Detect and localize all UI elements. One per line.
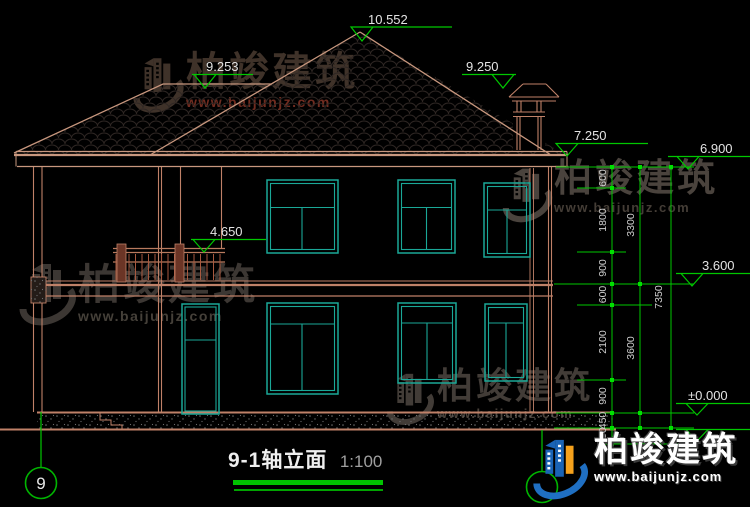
roof-tile-hatch	[14, 32, 564, 154]
window-1f-left	[267, 303, 338, 394]
window-2f-mid	[398, 180, 455, 253]
window-2f-right	[484, 183, 530, 257]
dim-900a: 900	[597, 259, 609, 277]
elevation-ground-floor: ±0.000	[688, 388, 728, 403]
drawing-scale: 1:100	[340, 452, 383, 472]
dim-3600: 3600	[625, 336, 637, 360]
dimension-labels: 600 1800 900 600 2100 900 450 450 3300 3…	[597, 169, 665, 445]
brand-site: www.baijunjz.com	[594, 469, 738, 484]
title-underline-thin	[234, 489, 383, 491]
elevation-eave-fascia: 7.250	[574, 128, 607, 143]
windows	[182, 180, 530, 414]
title-underline	[233, 480, 383, 485]
dim-1800: 1800	[597, 208, 609, 232]
column-base-hatch	[31, 277, 46, 303]
balcony-railing	[113, 244, 225, 282]
elevation-eave: 6.900	[700, 141, 733, 156]
walls	[33, 167, 553, 412]
dim-2100: 2100	[597, 330, 609, 354]
dimension-lines	[554, 167, 694, 444]
dim-600a: 600	[597, 169, 609, 187]
brand-logo-corner: 柏竣建筑 www.baijunjz.com	[528, 433, 738, 503]
entry-door	[182, 304, 219, 414]
elevation-balcony-rail: 4.650	[210, 224, 243, 239]
drawing-title: 9-1轴立面	[228, 444, 327, 474]
dim-450a: 450	[597, 412, 609, 430]
elevation-chimney: 9.250	[466, 59, 499, 74]
cad-canvas: 柏竣建筑 www.baijunjz.com 柏竣建筑 www.baijunjz.…	[0, 0, 750, 507]
brand-logo-icon	[528, 433, 590, 503]
chimney	[509, 84, 559, 152]
dim-7350: 7350	[653, 285, 665, 309]
elevation-left-ridge: 9.253	[206, 59, 239, 74]
window-1f-mid	[398, 303, 456, 383]
drawing-title-block: 9-1轴立面 1:100	[228, 444, 382, 474]
window-2f-left	[267, 180, 338, 253]
elevation-second-floor: 3.600	[702, 258, 735, 273]
dim-600b: 600	[597, 286, 609, 304]
elevation-ridge: 10.552	[368, 12, 408, 27]
dim-900b: 900	[597, 387, 609, 405]
ground	[0, 413, 616, 430]
dim-3300: 3300	[625, 213, 637, 237]
brand-name: 柏竣建筑	[594, 433, 738, 469]
grid-label-9: 9	[36, 474, 45, 493]
window-1f-right	[485, 304, 527, 381]
